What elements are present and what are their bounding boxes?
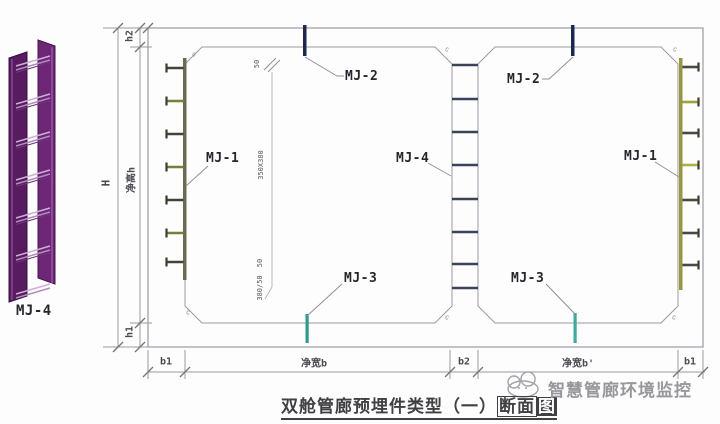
callout-mj1-left: MJ-1 (206, 151, 239, 166)
callout-mj1-right: MJ-1 (624, 149, 657, 164)
annotation-opening-size: 350X380 (257, 150, 265, 180)
chamfer-mark: c (673, 47, 677, 54)
drawing-title-boxed: 断面 (497, 396, 537, 417)
dim-roof-thickness: h2 (125, 30, 136, 42)
callout-mj2-left: MJ-2 (345, 69, 378, 84)
callout-mj3-right: MJ-3 (511, 271, 544, 286)
dim-clear-height: 净高h (123, 167, 138, 193)
dim-right-clear-width: 净宽b' (562, 355, 594, 370)
dim-left-clear-width: 净宽b (301, 355, 327, 370)
chamfer-mark: c (192, 52, 196, 59)
mj1-left-embed (167, 58, 187, 280)
chamfer-mark: c (186, 310, 190, 317)
chamfer-mark: c (445, 47, 449, 54)
drawing-title: 双舱管廊预埋件类型（一）断面图 (281, 392, 557, 420)
tunnel-outline (148, 28, 703, 347)
dim-center-wall: b2 (458, 357, 470, 368)
dim-overall-height: H (100, 180, 113, 187)
dim-left-wall: b1 (160, 357, 172, 368)
callout-mj4-center: MJ-4 (396, 151, 429, 166)
mj4-component-label: MJ-4 (16, 303, 52, 319)
chamfer-mark: c (672, 315, 676, 322)
dimension-ticks (113, 23, 708, 377)
drawing-title-text: 双舱管廊预埋件类型（一） (281, 397, 497, 416)
mj4-component-illustration (9, 40, 55, 302)
annotation-bottom-spacing: 380/50 (256, 275, 264, 300)
mj1-right-embed (679, 58, 699, 290)
dim-floor-thickness: h1 (125, 326, 136, 338)
center-annotation-line (264, 58, 280, 299)
watermark-text: 智慧管廊环境监控 (548, 376, 692, 401)
callout-mj2-right: MJ-2 (507, 72, 540, 87)
chamfer-mark: c (445, 315, 449, 322)
annotation-top-offset: 50 (253, 60, 261, 68)
callout-mj3-left: MJ-3 (344, 271, 377, 286)
dimension-lines (103, 28, 705, 379)
center-ladder (452, 65, 478, 288)
annotation-bottom-offset: 50 (256, 259, 264, 267)
drawing-canvas: MJ-4 MJ-2 MJ-2 MJ-1 MJ-1 MJ-4 MJ-3 MJ-3 … (0, 0, 720, 424)
dim-right-wall: b1 (684, 357, 696, 368)
section-drawing (0, 0, 720, 424)
